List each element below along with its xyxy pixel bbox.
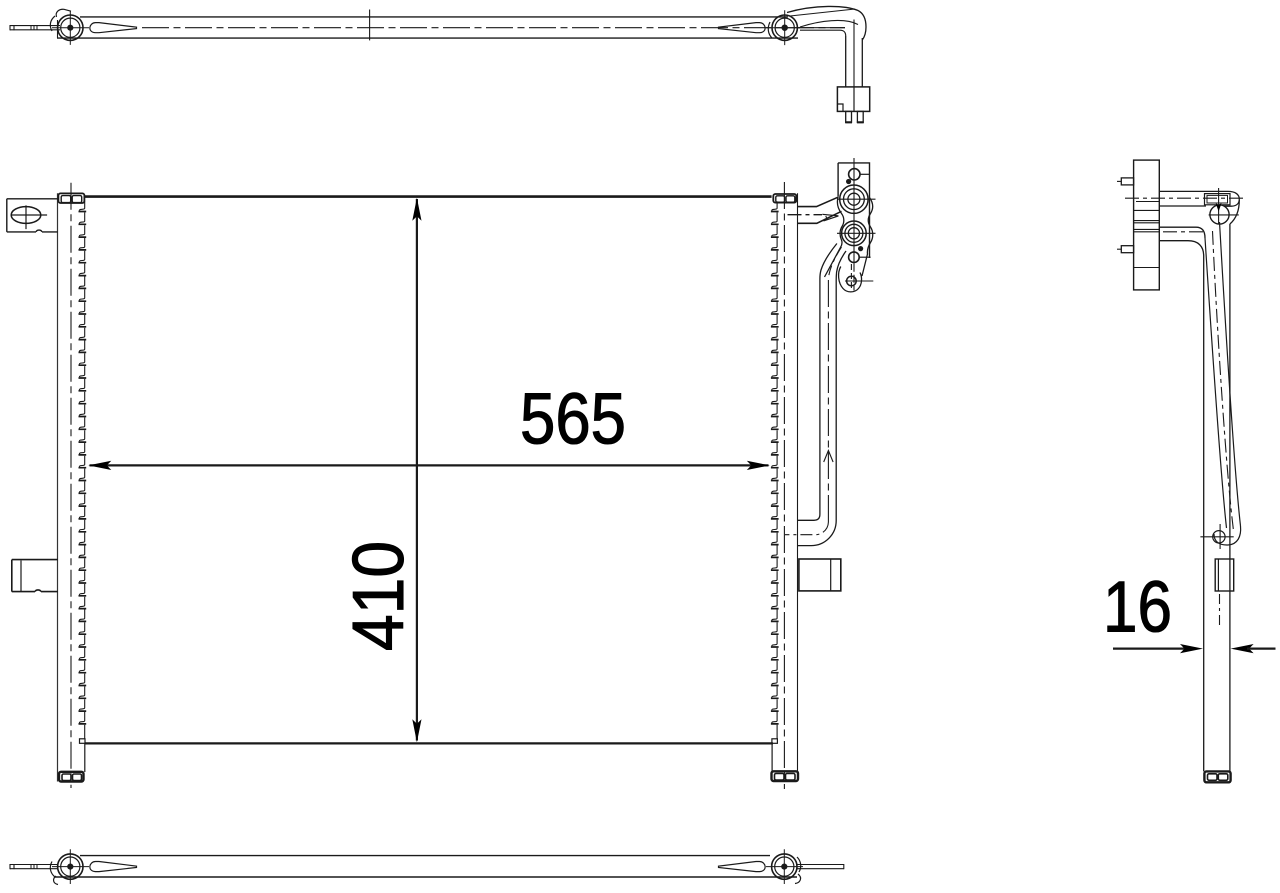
svg-text:410: 410	[338, 541, 419, 651]
svg-text:565: 565	[520, 379, 626, 460]
svg-text:16: 16	[1103, 567, 1172, 648]
